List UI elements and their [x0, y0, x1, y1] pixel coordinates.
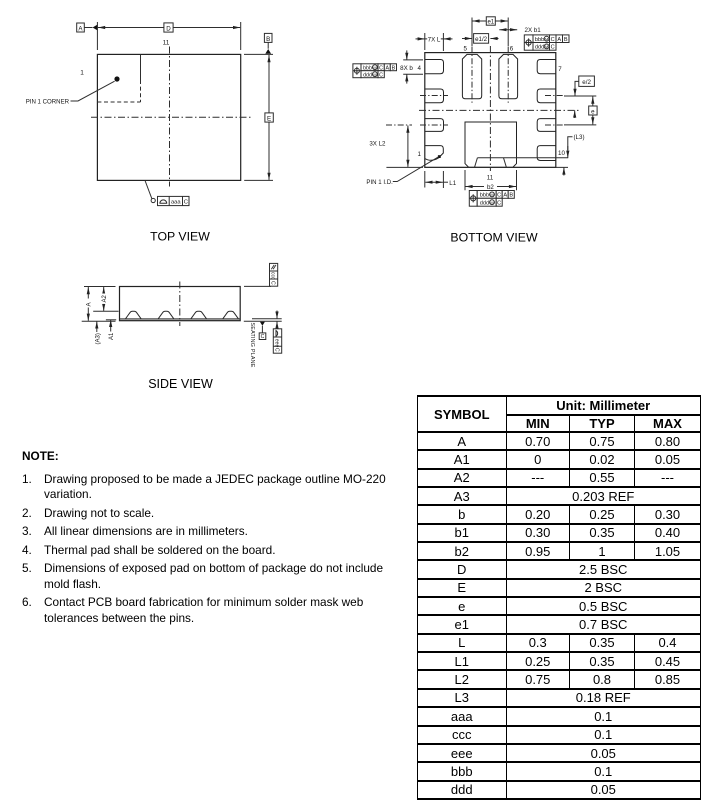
svg-text:M: M	[490, 192, 493, 197]
svg-text:11: 11	[163, 40, 170, 47]
svg-text:5: 5	[464, 46, 468, 53]
svg-text:2X b1: 2X b1	[525, 27, 542, 34]
svg-text:C: C	[497, 200, 501, 206]
svg-text:aaa: aaa	[171, 200, 181, 206]
svg-text:B: B	[266, 36, 270, 43]
svg-text:A: A	[503, 193, 507, 199]
svg-text:6: 6	[510, 46, 514, 53]
svg-text:4: 4	[418, 65, 422, 72]
svg-text:C: C	[261, 334, 265, 340]
svg-text:e1: e1	[487, 20, 494, 26]
svg-text:M: M	[373, 73, 376, 77]
svg-text:C: C	[551, 45, 555, 51]
svg-text:PIN 1 I.D.: PIN 1 I.D.	[366, 179, 393, 186]
svg-text:TOP VIEW: TOP VIEW	[150, 230, 210, 244]
svg-text:C: C	[551, 37, 555, 43]
svg-text:SEATING PLANE: SEATING PLANE	[249, 323, 255, 368]
svg-text:1: 1	[80, 70, 84, 77]
svg-text:ddd: ddd	[363, 72, 372, 78]
svg-text:8X b: 8X b	[400, 65, 413, 72]
svg-text:1: 1	[418, 151, 422, 158]
svg-text:M: M	[545, 37, 548, 42]
svg-text:11: 11	[487, 174, 494, 181]
svg-text:D: D	[166, 25, 171, 32]
svg-text:M: M	[490, 200, 493, 205]
svg-text:bbb: bbb	[535, 37, 544, 43]
svg-text:PIN 1 CORNER: PIN 1 CORNER	[26, 98, 70, 105]
svg-text:C: C	[379, 72, 383, 78]
svg-text:C: C	[379, 65, 383, 71]
svg-text:10: 10	[558, 150, 565, 157]
svg-text:7X L: 7X L	[428, 36, 441, 43]
svg-text:3X L2: 3X L2	[369, 140, 386, 147]
svg-text:B: B	[392, 65, 396, 71]
svg-text:C: C	[270, 281, 276, 285]
svg-text:e/2: e/2	[582, 79, 591, 86]
svg-text:E: E	[267, 115, 271, 122]
svg-text:bbb: bbb	[480, 193, 489, 199]
svg-text:A: A	[557, 37, 561, 43]
svg-text:eee: eee	[273, 339, 279, 348]
svg-text:L1: L1	[449, 180, 456, 187]
svg-text:e: e	[591, 108, 595, 115]
svg-text:e1/2: e1/2	[475, 36, 488, 43]
svg-text:A: A	[78, 25, 83, 32]
svg-text:A: A	[386, 65, 390, 71]
svg-text:C: C	[184, 200, 188, 206]
svg-text:B: B	[564, 37, 568, 43]
svg-text:7: 7	[558, 66, 562, 73]
svg-text:ccc: ccc	[270, 272, 276, 280]
svg-text:A1: A1	[109, 332, 115, 340]
svg-text:bbb: bbb	[363, 65, 372, 71]
svg-text:ddd: ddd	[535, 45, 544, 51]
svg-text:ddd: ddd	[480, 200, 489, 206]
svg-text:C: C	[273, 348, 279, 352]
svg-text:BOTTOM VIEW: BOTTOM VIEW	[450, 231, 538, 245]
svg-text:M: M	[545, 44, 548, 49]
svg-text:A2: A2	[102, 294, 108, 302]
svg-text:SIDE VIEW: SIDE VIEW	[148, 377, 213, 391]
svg-text:(A3): (A3)	[96, 333, 102, 344]
svg-text:M: M	[373, 66, 376, 70]
svg-text:C: C	[497, 193, 501, 199]
svg-text:(L3): (L3)	[574, 134, 585, 141]
svg-text:B: B	[509, 193, 513, 199]
